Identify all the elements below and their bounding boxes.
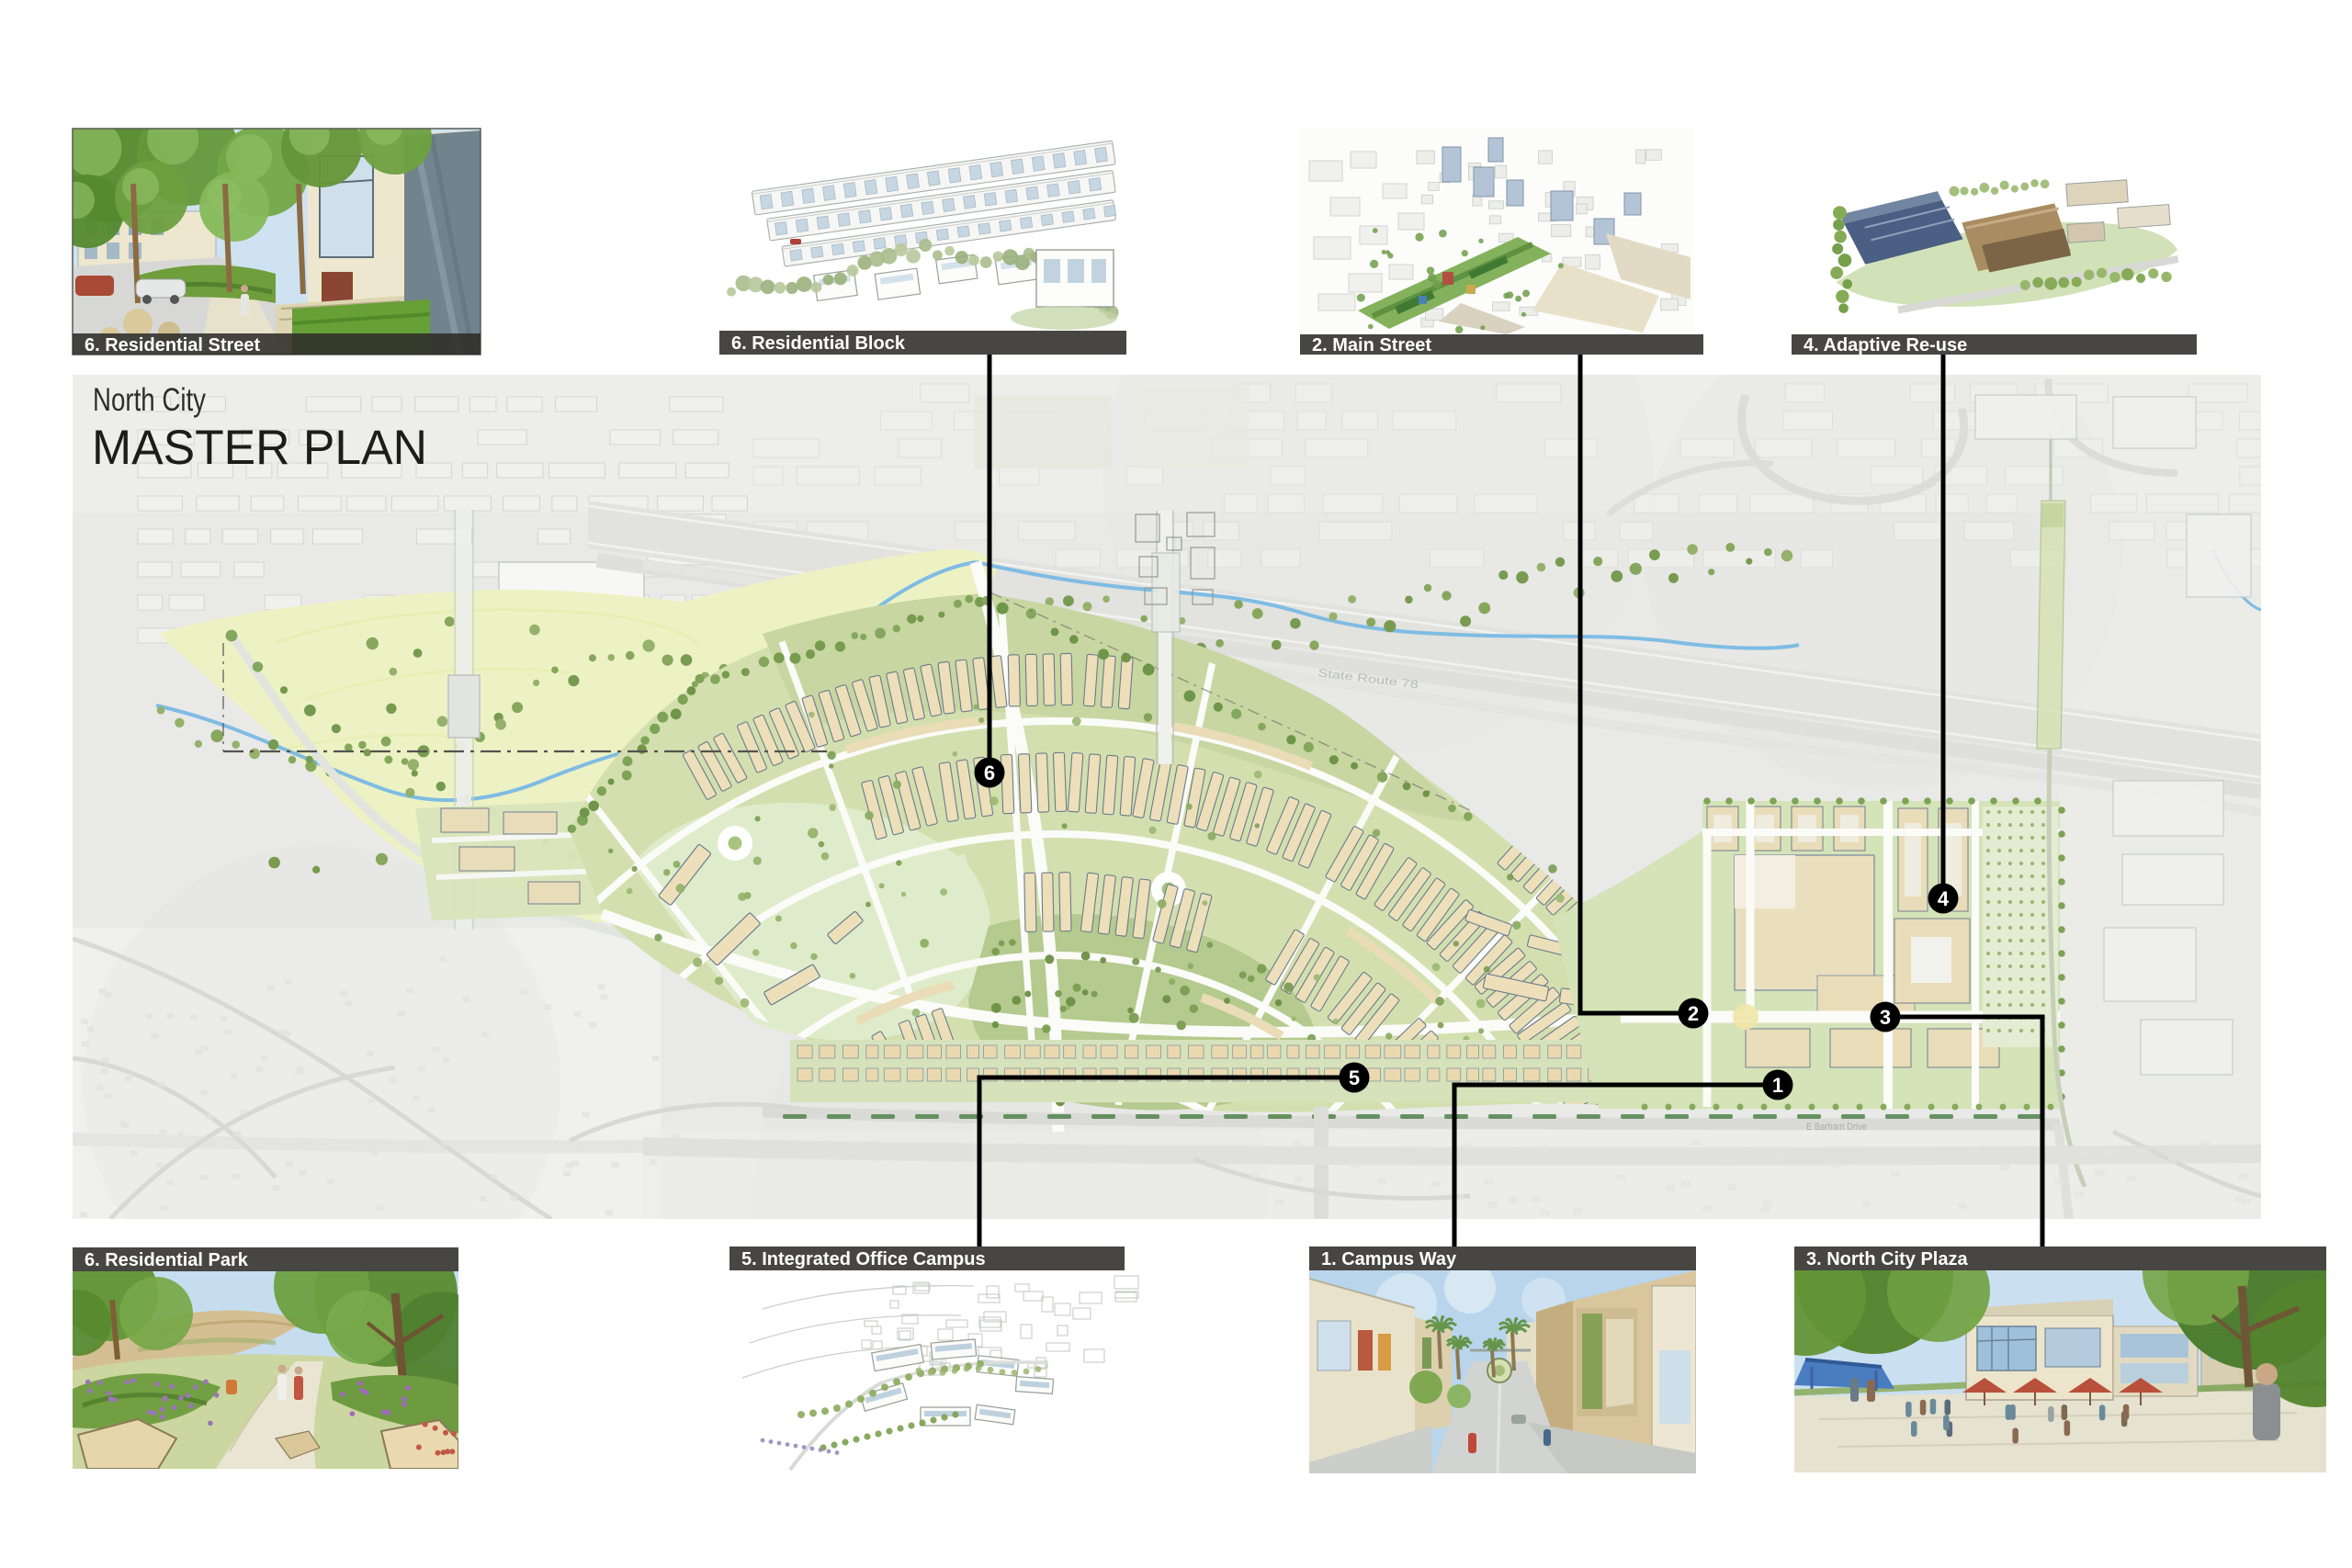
svg-text:4: 4 — [1938, 887, 1950, 910]
svg-text:4. Adaptive Re-use: 4. Adaptive Re-use — [1804, 335, 1967, 355]
svg-text:2. Main Street: 2. Main Street — [1312, 335, 1431, 355]
svg-text:1. Campus Way: 1. Campus Way — [1321, 1249, 1457, 1269]
svg-text:MASTER PLAN: MASTER PLAN — [92, 421, 427, 475]
svg-text:3. North City Plaza: 3. North City Plaza — [1806, 1249, 1968, 1269]
svg-text:6: 6 — [984, 761, 995, 784]
svg-text:6. Residential Street: 6. Residential Street — [85, 335, 261, 355]
svg-text:6. Residential Block: 6. Residential Block — [731, 333, 906, 354]
svg-text:5. Integrated Office Campus: 5. Integrated Office Campus — [741, 1249, 986, 1269]
svg-text:1: 1 — [1772, 1074, 1783, 1097]
svg-text:5: 5 — [1349, 1066, 1360, 1089]
svg-text:E Barham Drive: E Barham Drive — [1806, 1122, 1867, 1133]
svg-text:2: 2 — [1688, 1002, 1699, 1025]
svg-text:6. Residential Park: 6. Residential Park — [85, 1250, 249, 1270]
svg-text:North City: North City — [93, 382, 206, 418]
svg-text:3: 3 — [1880, 1006, 1891, 1029]
